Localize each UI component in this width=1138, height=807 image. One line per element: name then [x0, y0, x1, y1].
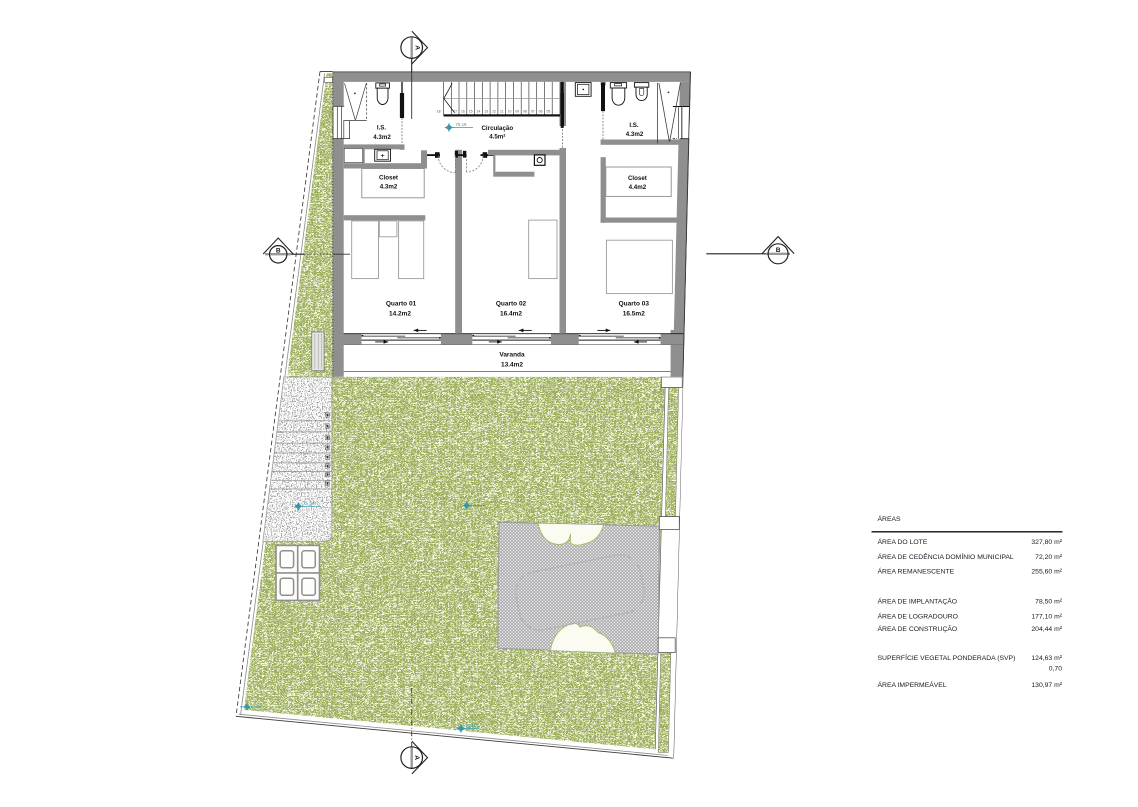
svg-text:ÁREA DE CEDÊNCIA DOMÍNIO MUNIC: ÁREA DE CEDÊNCIA DOMÍNIO MUNICIPAL	[878, 552, 1014, 561]
svg-text:4.3m2: 4.3m2	[373, 134, 391, 141]
svg-text:08: 08	[523, 110, 527, 114]
svg-text:327,80 m²: 327,80 m²	[1031, 539, 1062, 546]
svg-text:204,44 m²: 204,44 m²	[1031, 626, 1062, 633]
svg-text:ÁREA REMANESCENTE: ÁREA REMANESCENTE	[878, 567, 955, 576]
svg-text:ÁREAS: ÁREAS	[878, 514, 902, 523]
svg-text:177,10 m²: 177,10 m²	[1031, 613, 1062, 620]
svg-text:78,50 m²: 78,50 m²	[1035, 599, 1063, 606]
svg-text:B: B	[776, 247, 781, 254]
svg-text:4.3m2: 4.3m2	[380, 184, 398, 191]
svg-text:18: 18	[437, 110, 441, 114]
svg-text:Quarto 01: Quarto 01	[386, 301, 417, 308]
svg-text:Closet: Closet	[379, 175, 398, 182]
svg-text:130,97 m²: 130,97 m²	[1031, 682, 1062, 689]
svg-text:16.4m2: 16.4m2	[500, 311, 522, 318]
svg-text:4.5m²: 4.5m²	[489, 134, 505, 141]
svg-text:I.S.: I.S.	[377, 125, 387, 132]
svg-text:Circulação: Circulação	[481, 125, 513, 132]
svg-text:14: 14	[477, 110, 481, 114]
svg-text:Varanda: Varanda	[499, 352, 525, 359]
svg-text:ÁREA DE LOGRADOURO: ÁREA DE LOGRADOURO	[878, 611, 958, 620]
svg-text:Quarto 02: Quarto 02	[496, 301, 527, 308]
svg-text:06: 06	[539, 110, 543, 114]
svg-text:16.5m2: 16.5m2	[623, 311, 645, 318]
svg-text:13.4m2: 13.4m2	[501, 362, 523, 369]
svg-text:A: A	[413, 755, 420, 760]
svg-text:Quarto 03: Quarto 03	[619, 301, 650, 308]
svg-text:70.60: 70.60	[466, 723, 478, 728]
svg-text:14.2m2: 14.2m2	[389, 311, 411, 318]
svg-text:ÁREA DE CONSTRUÇÃO: ÁREA DE CONSTRUÇÃO	[878, 624, 958, 633]
svg-text:ÁREA DO LOTE: ÁREA DO LOTE	[878, 537, 928, 546]
svg-text:I.S.: I.S.	[629, 122, 639, 129]
svg-text:Closet: Closet	[628, 175, 647, 182]
svg-text:16: 16	[461, 110, 465, 114]
svg-text:ÁREA DE IMPLANTAÇÃO: ÁREA DE IMPLANTAÇÃO	[878, 597, 958, 606]
svg-text:09: 09	[515, 110, 519, 114]
svg-text:SUPERFÍCIE VEGETAL PONDERADA (: SUPERFÍCIE VEGETAL PONDERADA (SVP)	[878, 653, 1016, 662]
svg-text:10: 10	[508, 110, 512, 114]
svg-text:12: 12	[492, 110, 496, 114]
svg-text:11: 11	[500, 110, 504, 114]
svg-text:4.4m2: 4.4m2	[629, 184, 647, 191]
svg-text:0,70: 0,70	[1049, 665, 1062, 672]
svg-text:124,63 m²: 124,63 m²	[1031, 655, 1062, 662]
svg-text:4.3m2: 4.3m2	[626, 131, 644, 138]
svg-text:07: 07	[531, 110, 535, 114]
svg-text:05: 05	[547, 110, 551, 114]
svg-text:15: 15	[469, 110, 473, 114]
svg-text:13: 13	[484, 110, 488, 114]
svg-text:75.19: 75.19	[456, 122, 468, 127]
svg-text:255,60 m²: 255,60 m²	[1031, 569, 1062, 576]
svg-text:B: B	[276, 248, 281, 255]
svg-text:71.54: 71.54	[303, 501, 315, 506]
svg-text:17: 17	[453, 110, 457, 114]
svg-text:ÁREA IMPERMEÁVEL: ÁREA IMPERMEÁVEL	[878, 680, 947, 689]
svg-text:72,20 m²: 72,20 m²	[1035, 554, 1063, 561]
svg-text:A: A	[413, 45, 420, 50]
